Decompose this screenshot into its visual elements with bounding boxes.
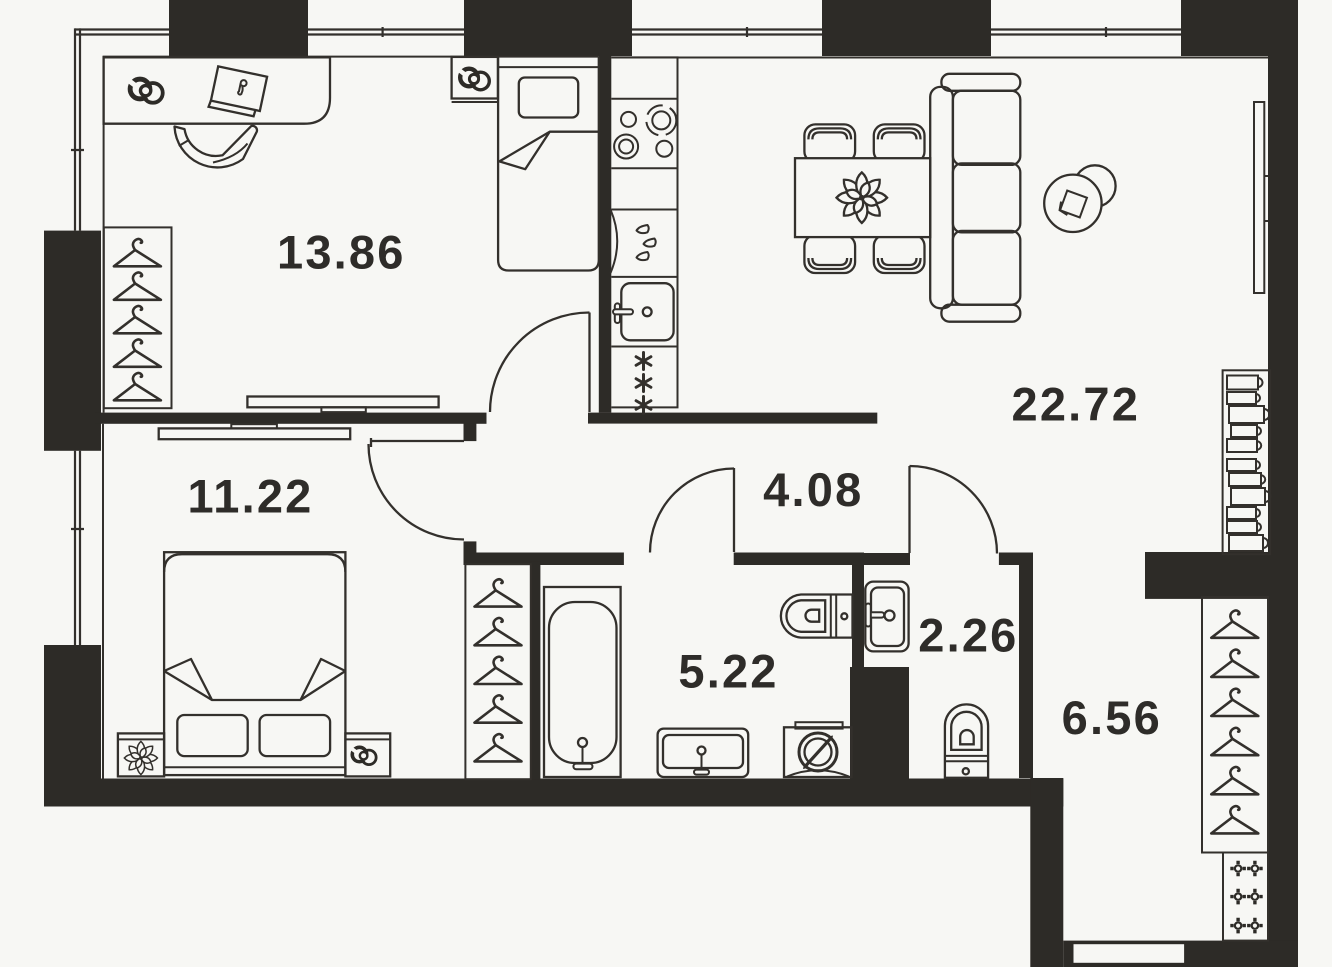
svg-text:22.72: 22.72 <box>1011 378 1140 431</box>
svg-text:13.86: 13.86 <box>277 226 406 279</box>
svg-text:11.22: 11.22 <box>187 470 313 523</box>
svg-text:2.26: 2.26 <box>918 609 1018 662</box>
svg-text:4.08: 4.08 <box>763 463 863 516</box>
svg-text:6.56: 6.56 <box>1062 691 1162 744</box>
svg-text:5.22: 5.22 <box>678 645 778 698</box>
